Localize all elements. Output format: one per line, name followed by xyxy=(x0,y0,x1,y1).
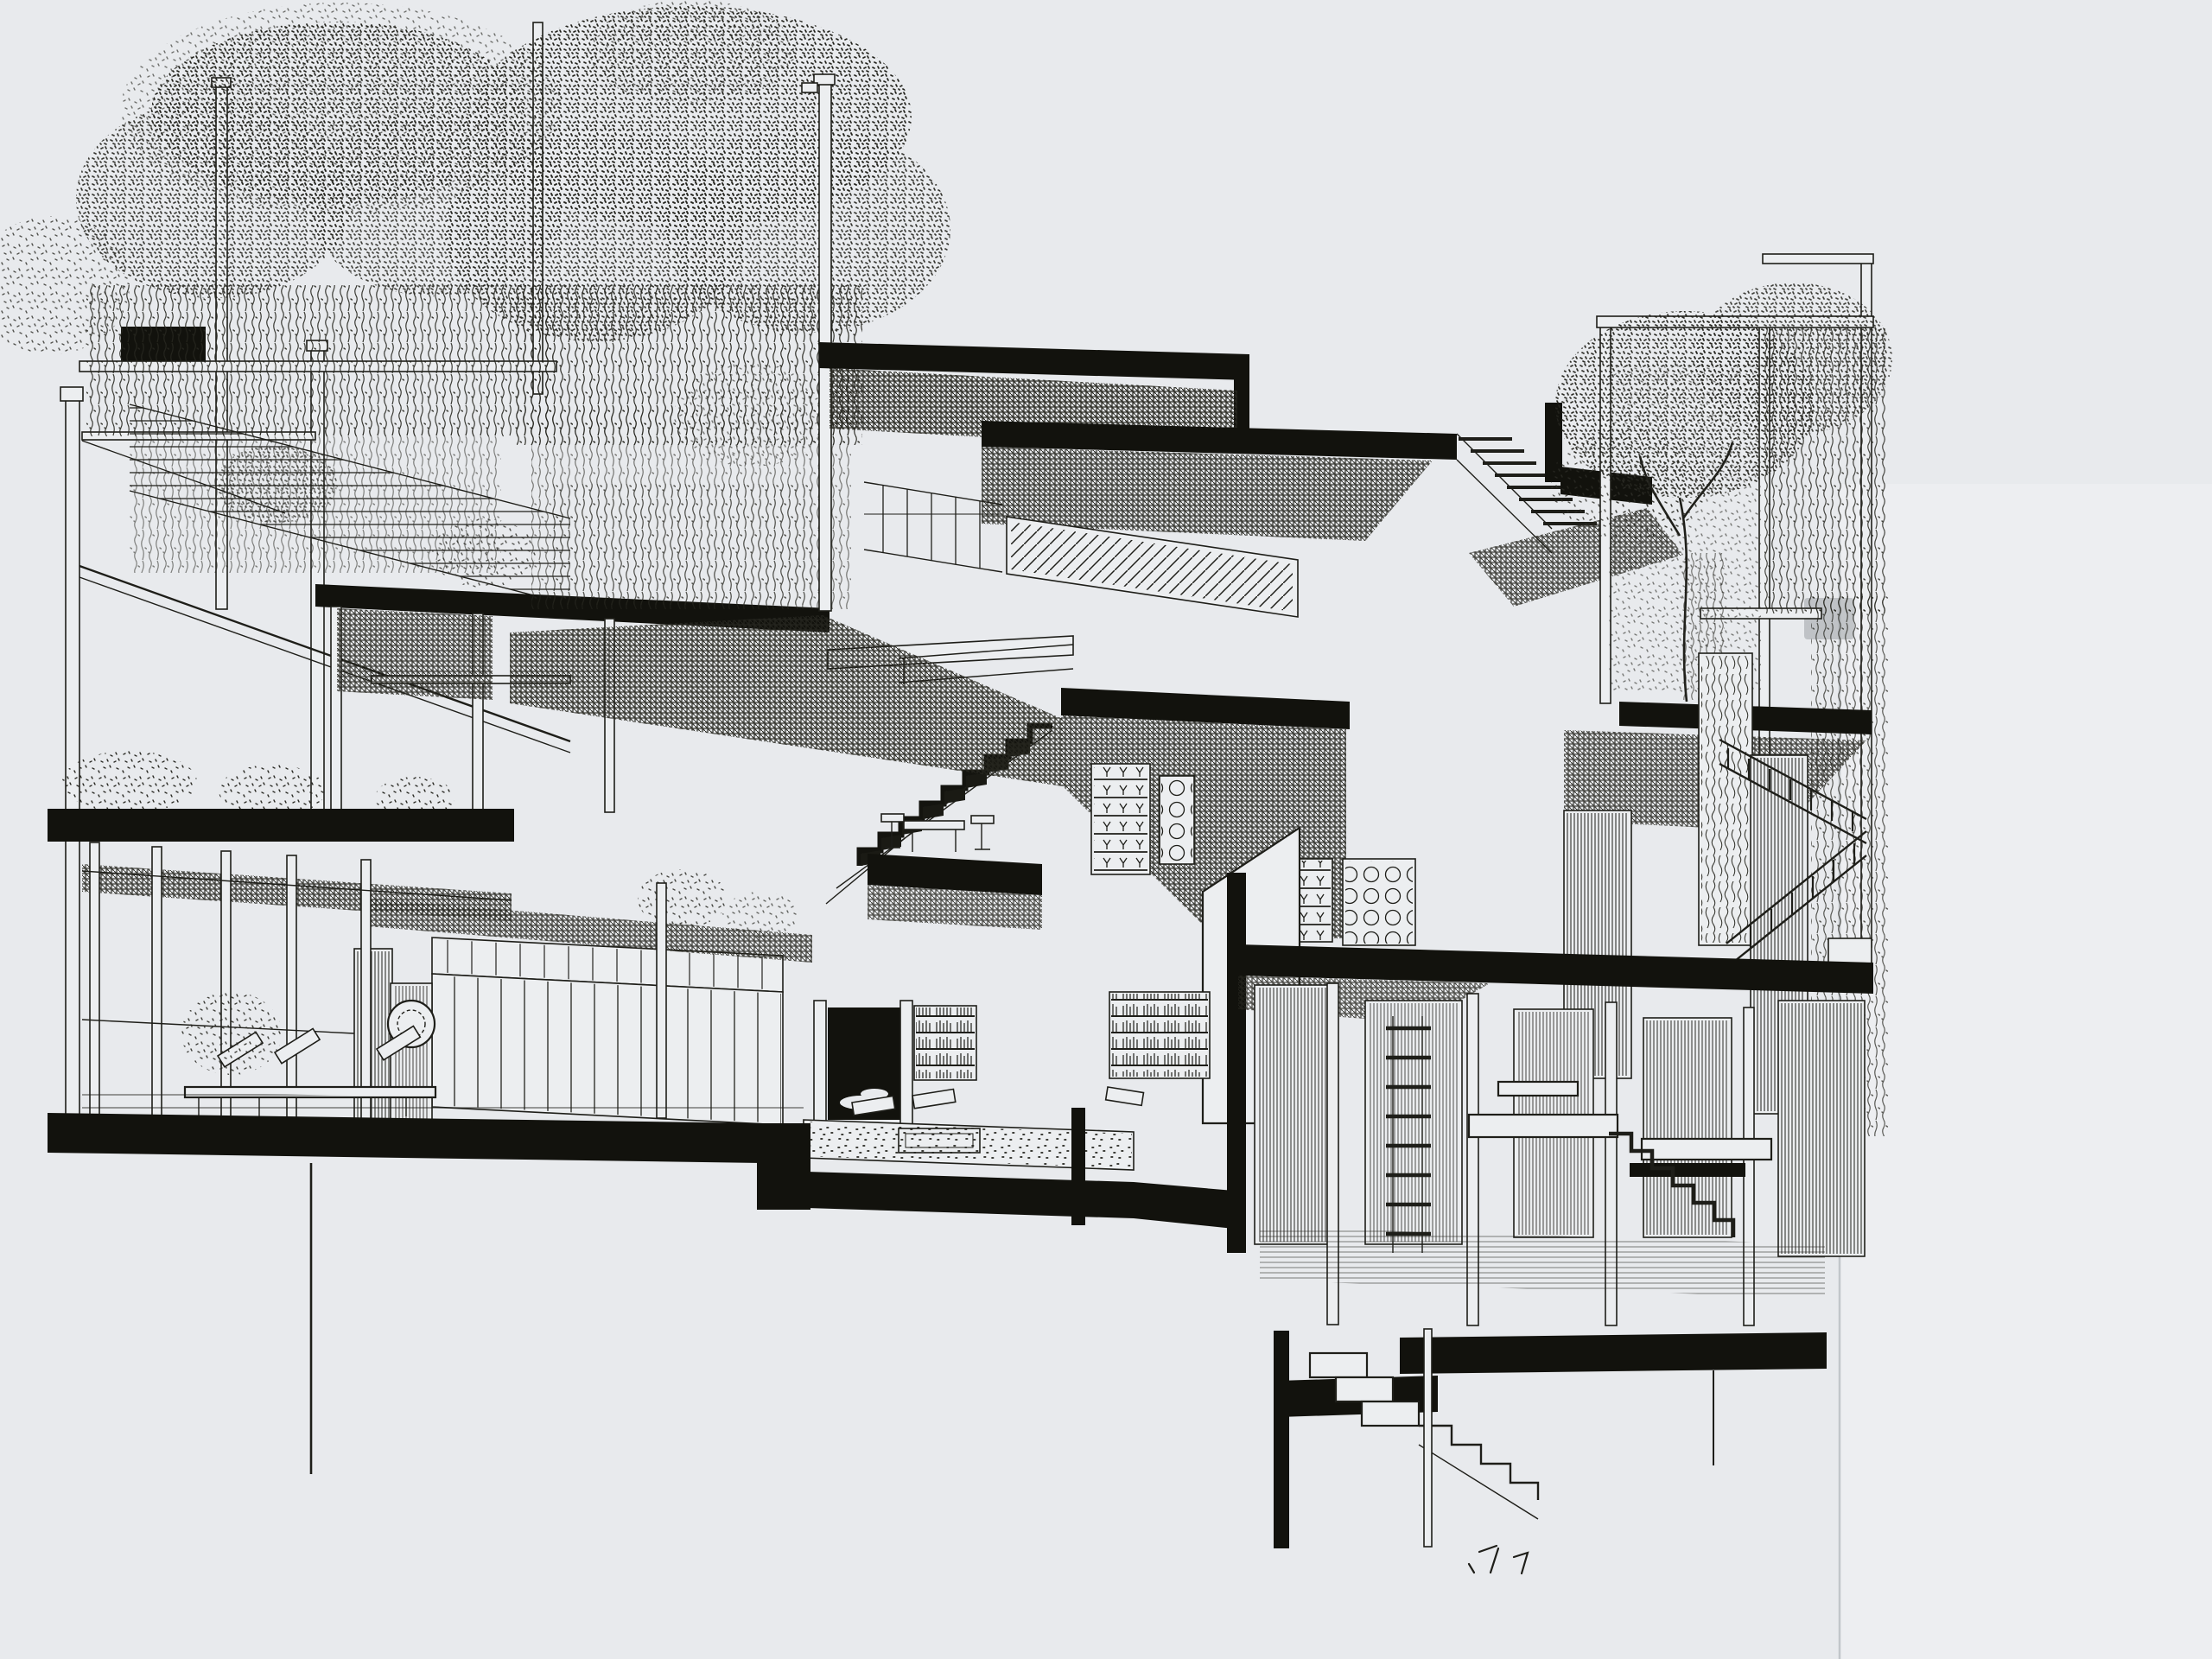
indoor-plant xyxy=(181,992,282,1075)
bench xyxy=(1642,1139,1771,1160)
sectional-perspective-drawing: Pen-and-ink sectional perspective drawin… xyxy=(0,0,2212,1659)
terrace-shrub xyxy=(62,751,197,813)
bench xyxy=(1469,1115,1618,1137)
pergola-post xyxy=(66,391,79,1121)
survey-pole xyxy=(1424,1329,1432,1547)
section-wall xyxy=(1071,1108,1085,1225)
climbing-vines xyxy=(1764,328,1885,613)
drawing-canvas: Pen-and-ink sectional perspective drawin… xyxy=(0,0,2212,1659)
balcony-plant xyxy=(638,869,728,928)
paper-right-strip xyxy=(1840,484,2212,1659)
mid-floor-slab xyxy=(48,809,514,842)
section-wall xyxy=(1227,873,1246,1253)
soffit-hatch xyxy=(337,608,493,700)
hanging-vines xyxy=(553,484,812,605)
table xyxy=(1498,1082,1578,1096)
frame-beam xyxy=(1763,254,1873,264)
hanging-vines xyxy=(86,285,553,436)
basement-wall xyxy=(1274,1331,1289,1548)
